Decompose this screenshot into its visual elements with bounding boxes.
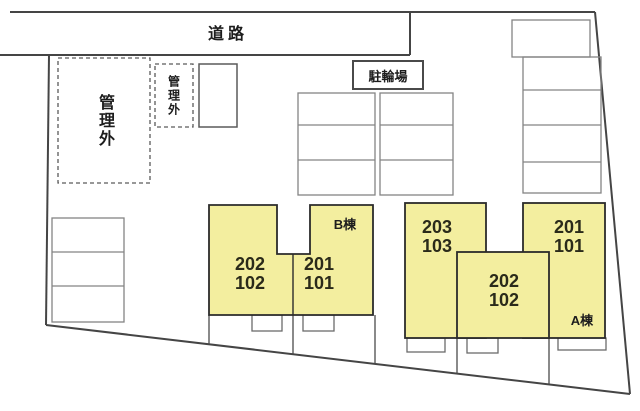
unit-lower: 103 — [405, 237, 469, 256]
porch-b-left — [252, 315, 282, 331]
road-label: 道路 — [193, 20, 263, 44]
outside-management-small-label: 管理外 — [166, 75, 183, 117]
porch-a-left — [407, 338, 445, 352]
parking-block-west — [52, 218, 124, 322]
unit-upper: 201 — [287, 255, 351, 274]
porch-a-right — [558, 338, 606, 350]
building-a-unit-201-101: 201 101 — [537, 218, 601, 256]
unit-upper: 202 — [218, 255, 282, 274]
bicycle-parking-label: 駐輪場 — [368, 66, 407, 85]
building-a-unit-203-103: 203 103 — [405, 218, 469, 256]
building-b-name: B棟 — [315, 214, 375, 233]
parking-block-center-right — [380, 93, 453, 195]
outside-management-large-area: 管理外 — [58, 58, 150, 183]
parking-stall-east-top — [512, 20, 590, 57]
small-structure-outline — [199, 64, 237, 127]
porch-a-middle — [467, 338, 498, 353]
unit-upper: 201 — [537, 218, 601, 237]
unit-lower: 101 — [287, 274, 351, 293]
unit-upper: 202 — [472, 272, 536, 291]
unit-lower: 102 — [472, 291, 536, 310]
building-a-unit-202-102: 202 102 — [472, 272, 536, 310]
bicycle-parking-sign: 駐輪場 — [352, 60, 424, 90]
unit-upper: 203 — [405, 218, 469, 237]
west-boundary-line — [46, 55, 49, 325]
unit-lower: 101 — [537, 237, 601, 256]
unit-lower: 102 — [218, 274, 282, 293]
outside-management-large-label: 管理外 — [92, 94, 116, 148]
building-b-unit-202-102: 202 102 — [218, 255, 282, 293]
building-b-unit-201-101: 201 101 — [287, 255, 351, 293]
outside-management-small-area: 管理外 — [155, 64, 193, 127]
porch-b-right — [303, 315, 334, 331]
parking-block-center-left — [298, 93, 375, 195]
site-plan: 道路 管理外 管理外 駐輪場 B棟 202 102 201 101 203 10… — [0, 0, 640, 411]
building-a-name: A棟 — [552, 310, 612, 329]
